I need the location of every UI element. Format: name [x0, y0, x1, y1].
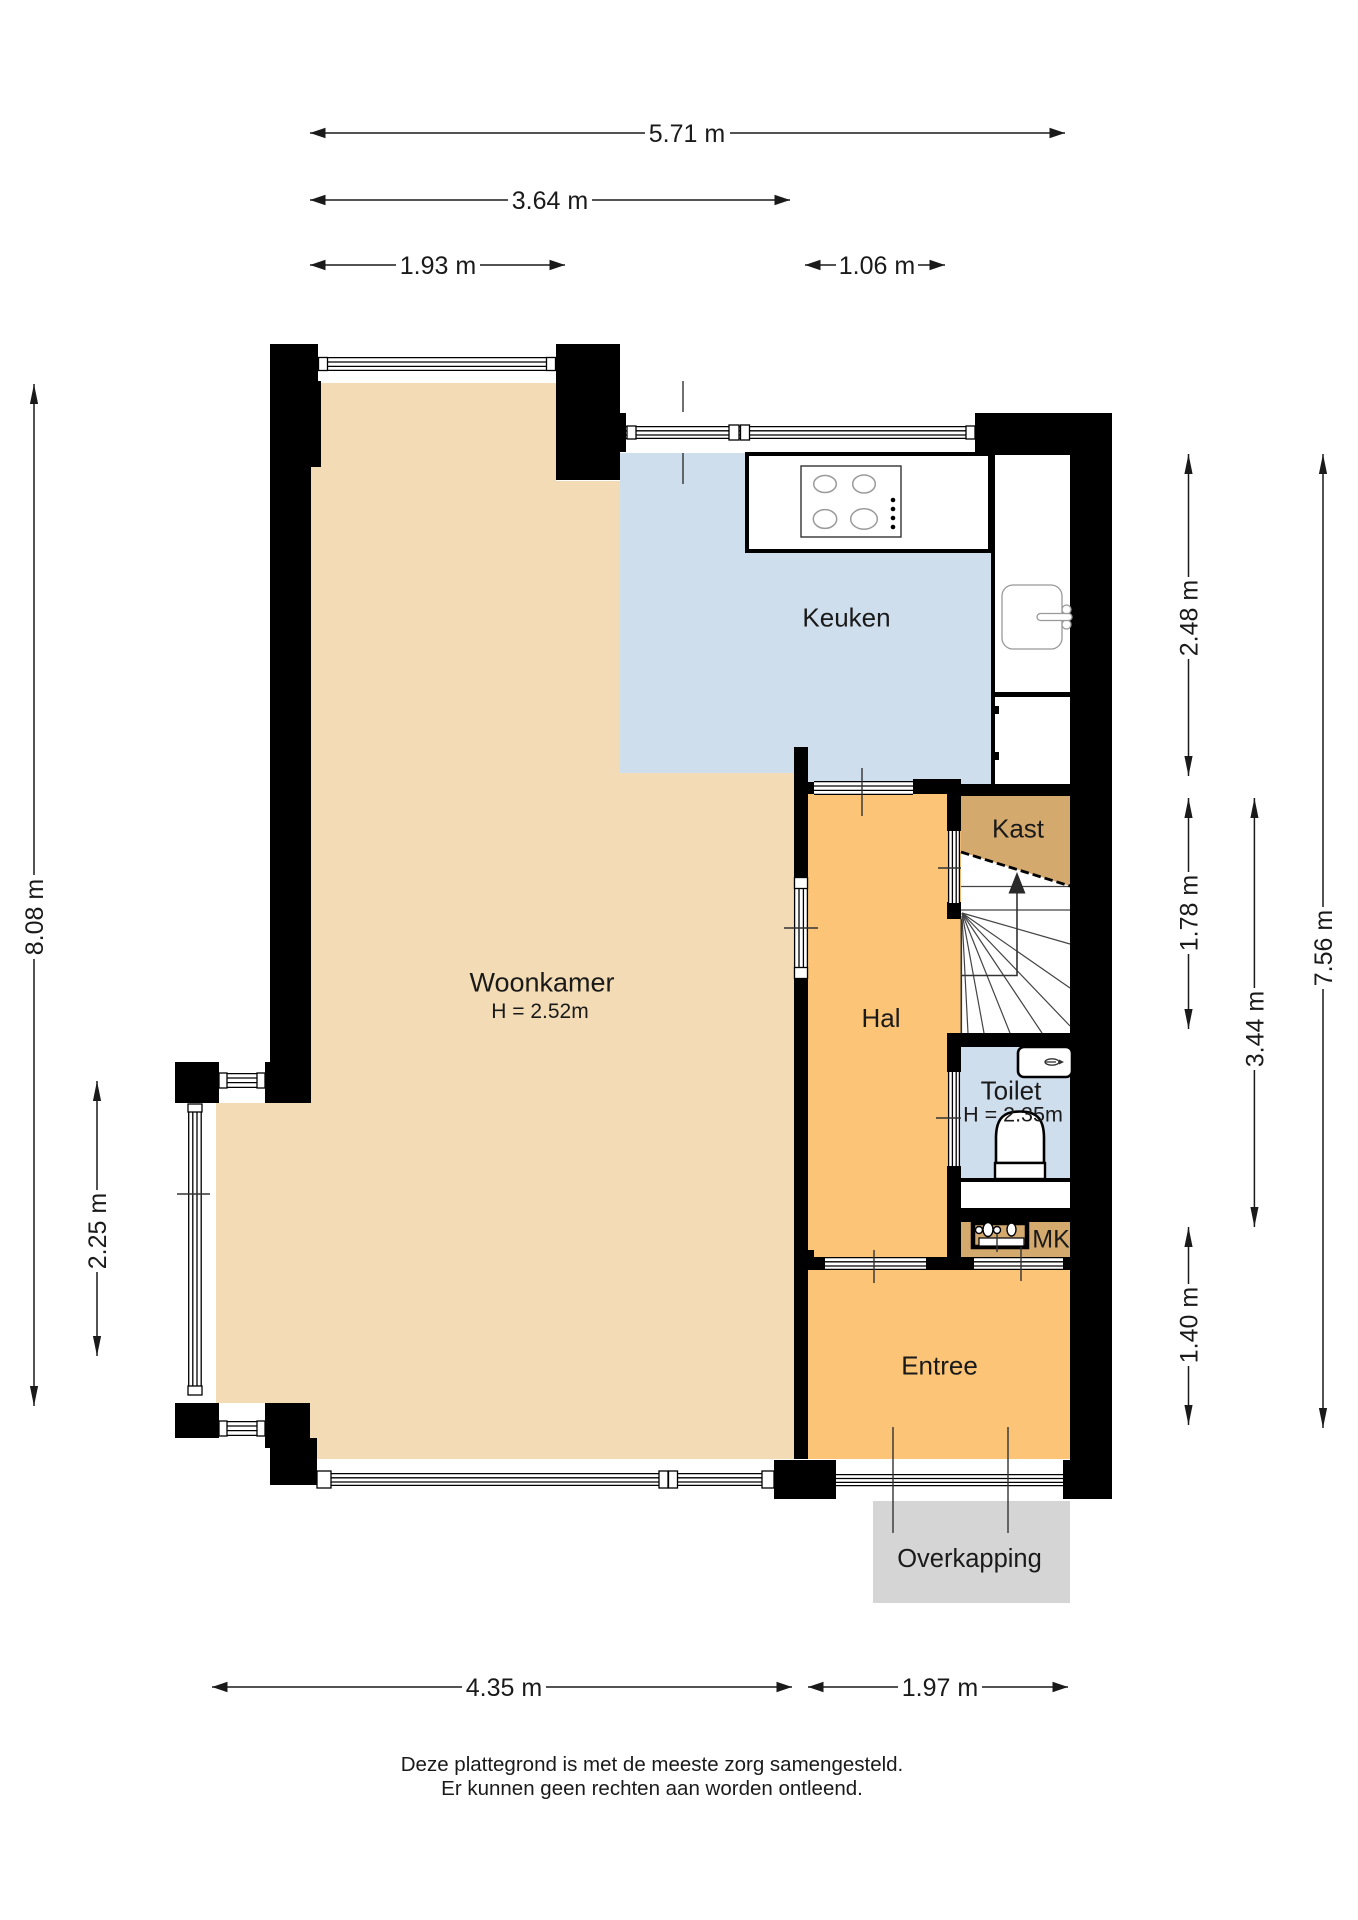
svg-text:3.44 m: 3.44 m — [1241, 991, 1269, 1067]
svg-text:1.06 m: 1.06 m — [839, 252, 915, 280]
svg-text:2.25 m: 2.25 m — [84, 1193, 112, 1269]
svg-text:Keuken: Keuken — [802, 603, 890, 633]
svg-text:Kast: Kast — [992, 814, 1045, 844]
svg-text:Hal: Hal — [861, 1003, 900, 1033]
svg-text:Toilet: Toilet — [981, 1076, 1042, 1106]
svg-text:8.08 m: 8.08 m — [21, 879, 49, 955]
svg-text:Er kunnen geen rechten aan wor: Er kunnen geen rechten aan worden ontlee… — [441, 1777, 863, 1800]
svg-text:7.56 m: 7.56 m — [1310, 910, 1338, 986]
svg-text:MK: MK — [1032, 1226, 1070, 1254]
svg-text:4.35 m: 4.35 m — [466, 1674, 542, 1702]
svg-text:Woonkamer: Woonkamer — [469, 968, 614, 998]
svg-text:Overkapping: Overkapping — [897, 1545, 1042, 1573]
svg-text:1.97 m: 1.97 m — [902, 1674, 978, 1702]
svg-text:2.48 m: 2.48 m — [1176, 580, 1204, 656]
svg-text:1.78 m: 1.78 m — [1176, 875, 1204, 951]
svg-text:1.93 m: 1.93 m — [400, 252, 476, 280]
svg-text:H = 2.52m: H = 2.52m — [491, 1000, 588, 1023]
svg-text:3.64 m: 3.64 m — [512, 187, 588, 215]
svg-text:1.40 m: 1.40 m — [1176, 1287, 1204, 1363]
svg-text:Deze plattegrond is met de mee: Deze plattegrond is met de meeste zorg s… — [401, 1753, 904, 1776]
svg-text:H = 2.35m: H = 2.35m — [963, 1103, 1063, 1127]
svg-text:Entree: Entree — [901, 1351, 978, 1381]
svg-text:5.71 m: 5.71 m — [649, 120, 725, 148]
